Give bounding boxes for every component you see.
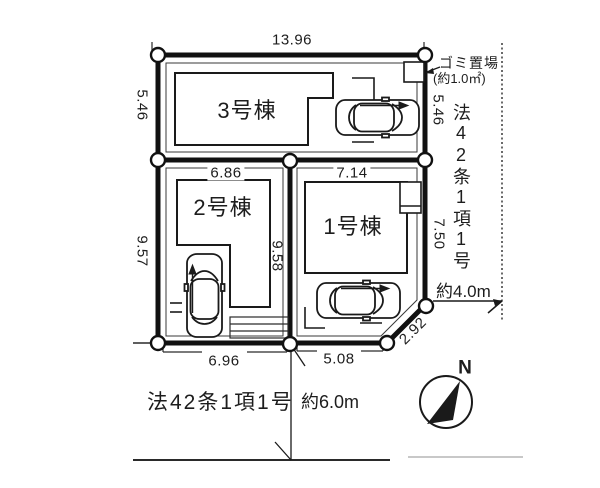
dim-left-lower: 9.57 xyxy=(135,235,150,266)
building-1-label: 1号棟 xyxy=(323,216,382,238)
road-right-width-arrow xyxy=(433,299,502,313)
car-icon xyxy=(317,281,400,321)
dim-building2-width: 6.86 xyxy=(207,166,244,181)
building-3-label: 3号棟 xyxy=(217,100,276,122)
dim-right-lower: 7.50 xyxy=(432,218,447,249)
road-right-class-label: 法42条1項1号 xyxy=(452,103,470,271)
car-icon xyxy=(336,98,419,138)
garbage-area-label: ゴミ置場 xyxy=(439,56,499,70)
dim-bottom-left: 6.96 xyxy=(208,354,239,369)
road-bottom-class-label: 法42条1項1号 xyxy=(147,392,294,413)
dim-building1-width: 7.14 xyxy=(333,166,370,181)
dim-center-vertical: 9.58 xyxy=(270,240,285,271)
dim-left-upper: 5.46 xyxy=(135,89,150,120)
compass-icon xyxy=(420,376,472,428)
garbage-area-size-label: (約1.0㎡) xyxy=(433,72,486,85)
dim-bottom-right: 5.08 xyxy=(323,352,354,367)
terrace-steps xyxy=(230,317,288,338)
road-bottom-edge xyxy=(133,457,523,460)
road-bottom-width-label: 約6.0m xyxy=(301,393,359,411)
site-plan-drawing xyxy=(0,0,600,488)
dim-top: 13.96 xyxy=(272,33,312,48)
road-right-width-label: 約4.0m xyxy=(436,283,491,300)
dim-right-upper: 5.46 xyxy=(431,94,446,125)
compass-north-label: N xyxy=(458,359,472,378)
building-2-label: 2号棟 xyxy=(193,197,252,219)
car-icon xyxy=(185,254,225,337)
site-plan: 13.96 5.46 9.57 5.46 7.50 6.86 7.14 9.58… xyxy=(0,0,600,488)
